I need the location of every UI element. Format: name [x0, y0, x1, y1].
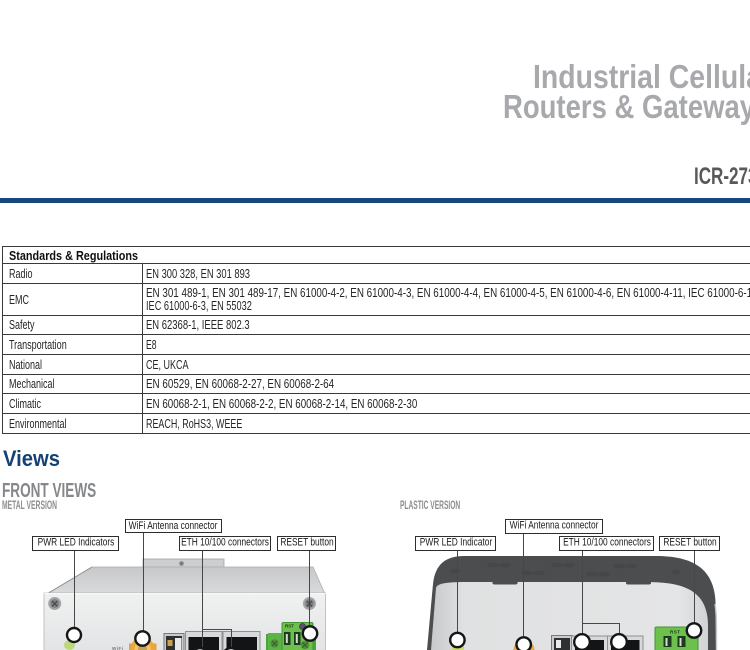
svg-text:WiFi: WiFi: [112, 646, 123, 650]
svg-text:RST: RST: [285, 624, 294, 629]
svg-text:RST: RST: [670, 630, 680, 635]
